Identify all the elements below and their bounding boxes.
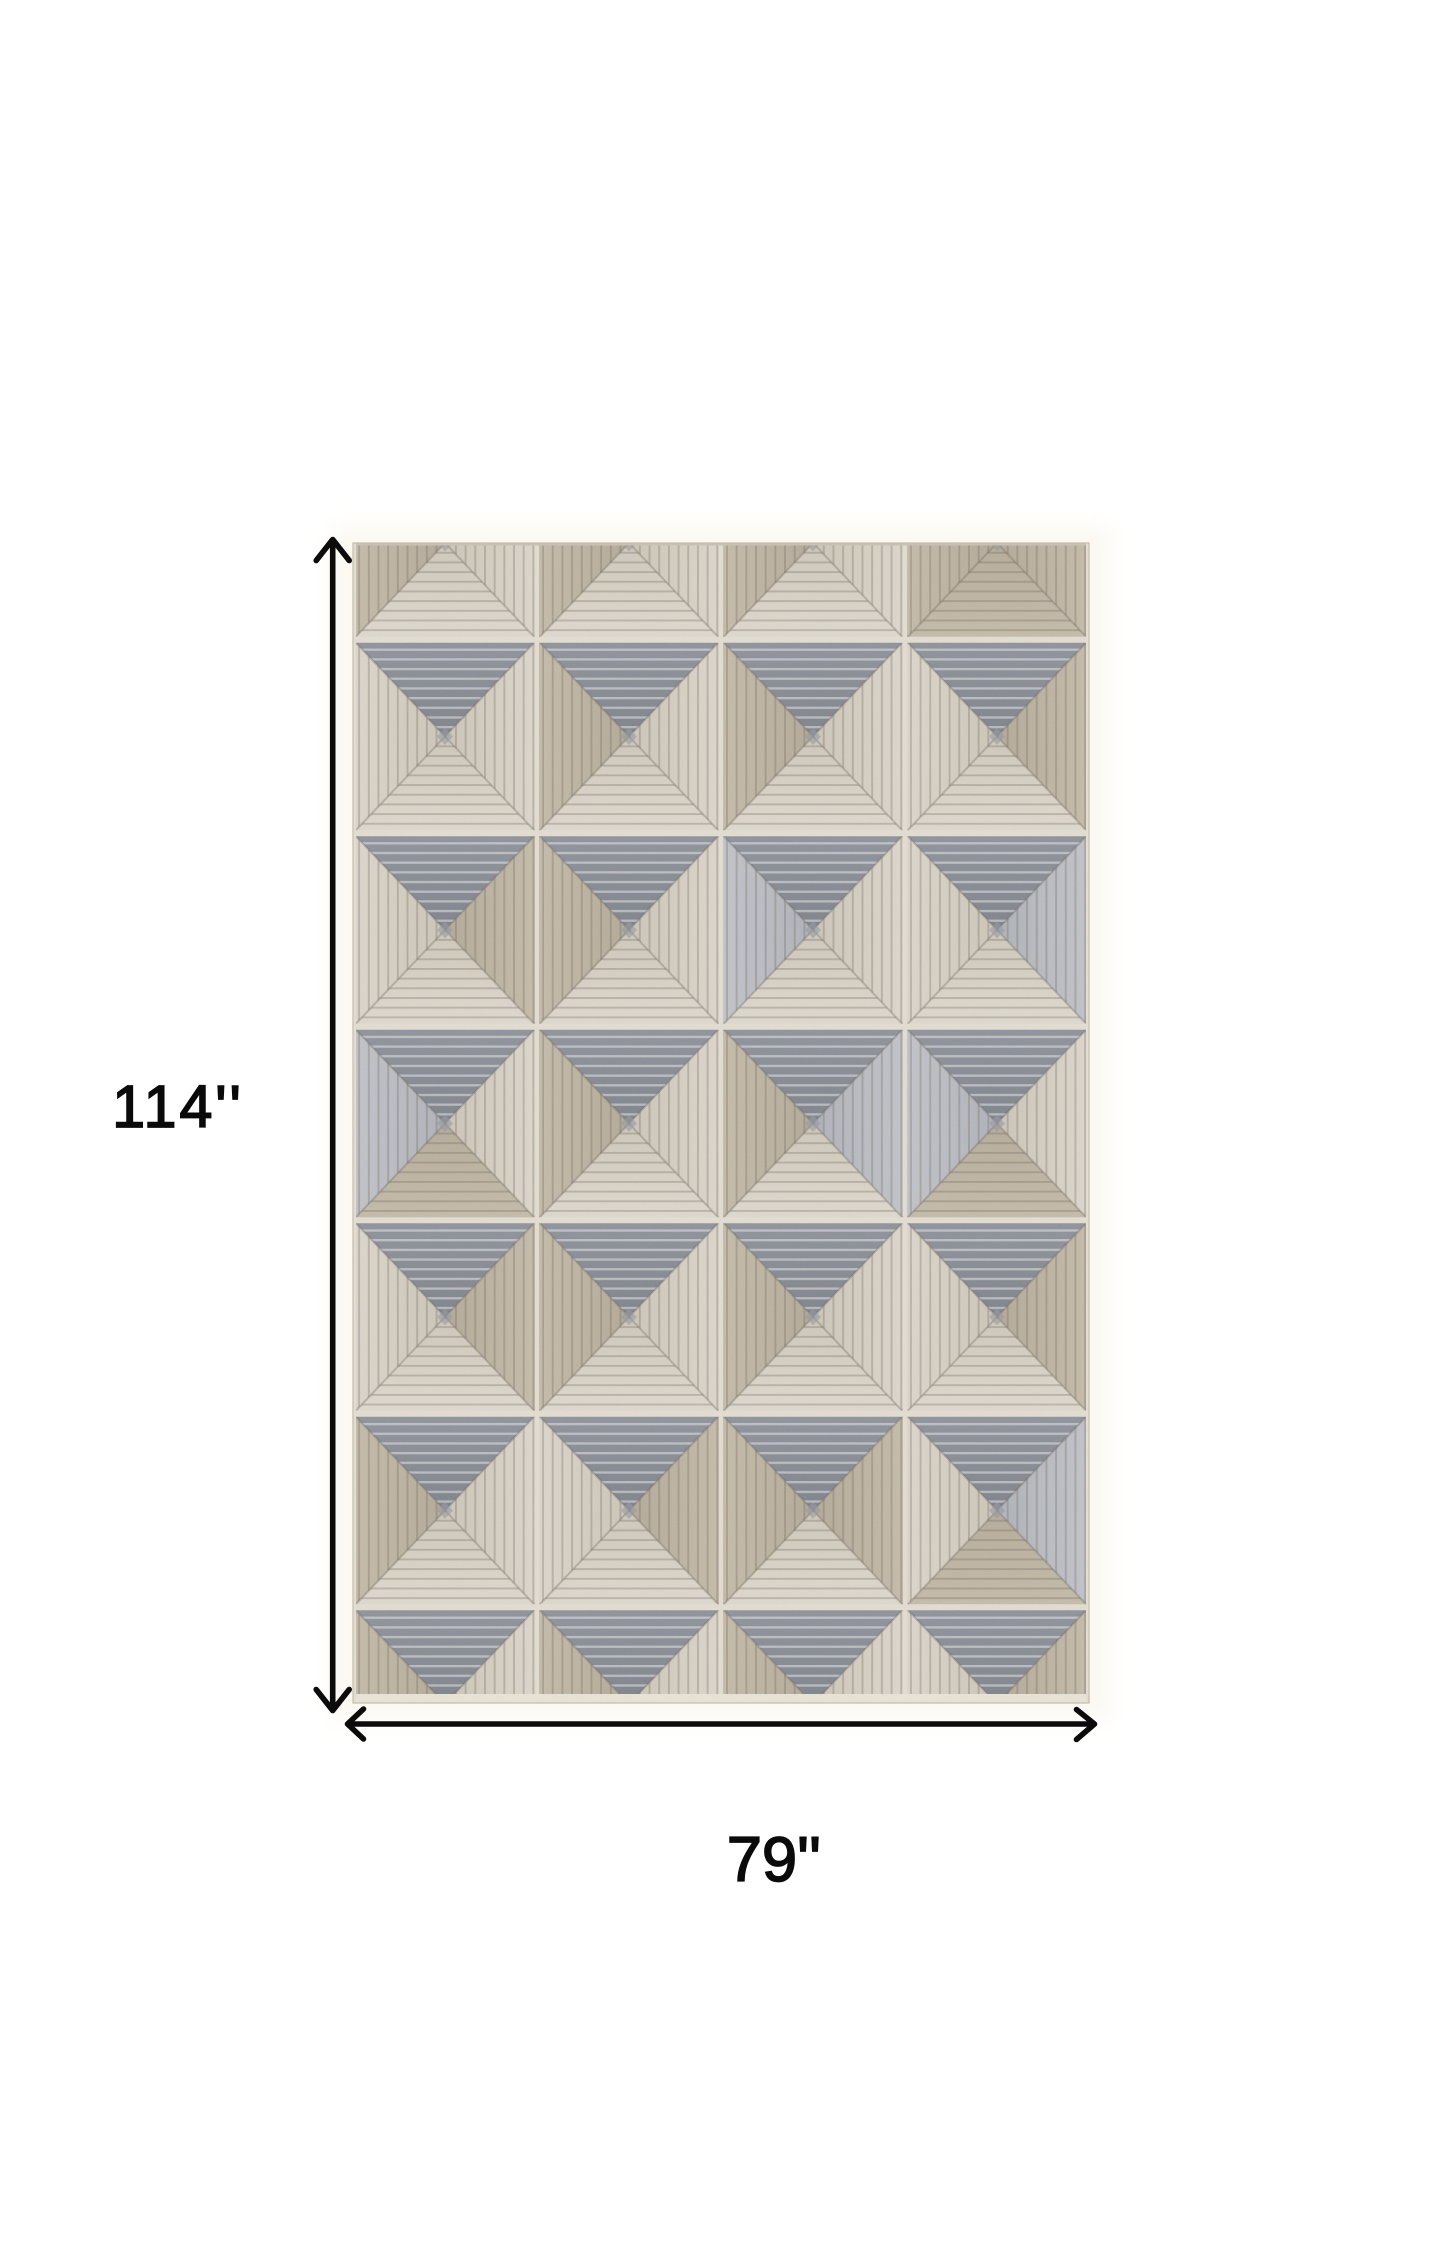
svg-text:79'': 79'' — [727, 1825, 821, 1895]
svg-text:114'': 114'' — [112, 1074, 244, 1140]
